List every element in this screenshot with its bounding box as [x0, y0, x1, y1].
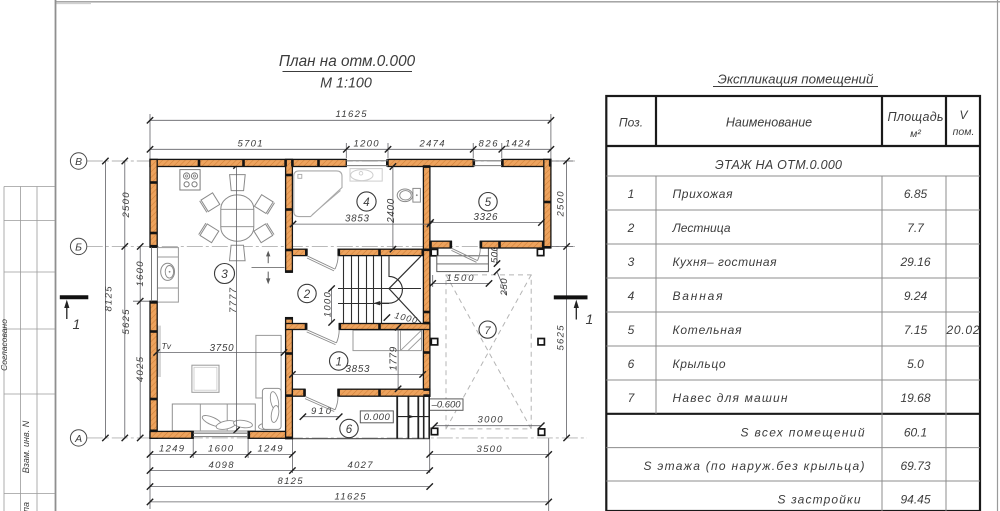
svg-text:3853: 3853: [345, 214, 370, 225]
svg-text:А: А: [74, 433, 82, 445]
svg-text:1500: 1500: [447, 273, 475, 284]
svg-text:5: 5: [628, 323, 635, 337]
svg-text:9.24: 9.24: [904, 289, 928, 303]
svg-text:1424: 1424: [505, 139, 530, 150]
svg-text:69.73: 69.73: [900, 459, 930, 473]
svg-text:1249: 1249: [159, 444, 185, 455]
svg-text:Кухня– гостиная: Кухня– гостиная: [673, 255, 778, 269]
svg-text:3500: 3500: [477, 444, 503, 455]
svg-text:Экспликация помещений: Экспликация помещений: [718, 72, 874, 87]
svg-text:3000: 3000: [478, 414, 504, 425]
svg-text:1: 1: [628, 187, 635, 201]
svg-text:3853: 3853: [346, 364, 371, 375]
svg-text:2500: 2500: [556, 191, 567, 218]
svg-text:19.68: 19.68: [900, 391, 930, 405]
svg-text:Лестница: Лестница: [672, 221, 731, 235]
svg-text:Котельная: Котельная: [673, 323, 743, 337]
svg-text:1249: 1249: [258, 444, 284, 455]
svg-text:5625: 5625: [121, 309, 132, 335]
svg-text:В: В: [75, 156, 82, 168]
svg-text:1200: 1200: [354, 139, 380, 150]
svg-text:3: 3: [628, 255, 635, 269]
svg-text:Площадь: Площадь: [888, 110, 944, 124]
svg-text:7.15: 7.15: [904, 323, 928, 337]
svg-text:М 1:100: М 1:100: [320, 76, 372, 92]
svg-text:94.45: 94.45: [900, 493, 930, 507]
svg-text:па: па: [21, 502, 31, 511]
svg-text:8125: 8125: [104, 286, 115, 312]
svg-text:7.7: 7.7: [907, 221, 925, 235]
svg-text:1: 1: [73, 316, 81, 332]
svg-text:8125: 8125: [278, 476, 304, 487]
svg-text:7: 7: [485, 325, 492, 337]
svg-text:29.16: 29.16: [899, 255, 930, 269]
svg-text:1600: 1600: [135, 261, 146, 287]
svg-text:2: 2: [303, 289, 311, 301]
svg-text:3326: 3326: [474, 212, 499, 223]
svg-text:Прихожая: Прихожая: [673, 187, 734, 201]
svg-text:4027: 4027: [348, 460, 374, 471]
svg-text:План на отм.0.000: План на отм.0.000: [279, 53, 416, 70]
svg-text:2400: 2400: [386, 198, 397, 224]
svg-text:2500: 2500: [121, 192, 132, 219]
svg-text:826: 826: [479, 139, 499, 150]
svg-text:6: 6: [628, 357, 635, 371]
svg-text:–0.600: –0.600: [431, 400, 462, 411]
svg-text:Крыльцо: Крыльцо: [673, 357, 726, 371]
svg-text:5: 5: [485, 197, 492, 209]
svg-text:20.02: 20.02: [946, 323, 980, 337]
svg-text:5625: 5625: [556, 325, 567, 351]
svg-text:3: 3: [221, 267, 228, 281]
svg-text:4098: 4098: [209, 460, 235, 471]
svg-text:1600: 1600: [208, 444, 234, 455]
svg-text:5.0: 5.0: [907, 357, 924, 371]
svg-text:3750: 3750: [210, 343, 235, 354]
svg-text:Согласовано: Согласовано: [0, 319, 9, 371]
svg-text:910: 910: [311, 406, 332, 417]
svg-text:м²: м²: [910, 128, 921, 140]
svg-text:5701: 5701: [238, 139, 263, 150]
svg-text:6.85: 6.85: [904, 187, 928, 201]
svg-text:1: 1: [586, 311, 594, 327]
svg-text:пом.: пом.: [953, 126, 975, 138]
svg-text:V: V: [959, 108, 968, 122]
svg-text:Поз.: Поз.: [619, 116, 643, 130]
svg-text:2: 2: [627, 221, 635, 235]
svg-text:1: 1: [335, 356, 341, 368]
svg-text:1779: 1779: [388, 346, 399, 371]
svg-text:250: 250: [499, 278, 510, 297]
svg-text:Tv: Tv: [162, 341, 172, 351]
svg-text:Наименование: Наименование: [726, 116, 812, 130]
svg-text:4025: 4025: [135, 356, 146, 382]
svg-text:7777: 7777: [228, 287, 239, 313]
svg-text:4: 4: [363, 197, 369, 209]
svg-text:Навес для машин: Навес для машин: [673, 391, 788, 405]
svg-text:60.1: 60.1: [904, 426, 927, 440]
svg-text:1000: 1000: [323, 291, 334, 317]
svg-text:Взам. инв. N: Взам. инв. N: [21, 420, 31, 473]
svg-text:0.000: 0.000: [364, 412, 391, 423]
svg-text:S всех помещений: S всех помещений: [741, 426, 865, 440]
svg-text:ЭТАЖ НА ОТМ.0.000: ЭТАЖ НА ОТМ.0.000: [715, 158, 842, 172]
svg-text:4: 4: [628, 289, 635, 303]
svg-text:Б: Б: [75, 241, 82, 253]
svg-text:S этажа (по наруж.без крыл: S этажа (по наруж.без крыльца): [644, 459, 865, 473]
svg-text:6: 6: [346, 424, 353, 436]
